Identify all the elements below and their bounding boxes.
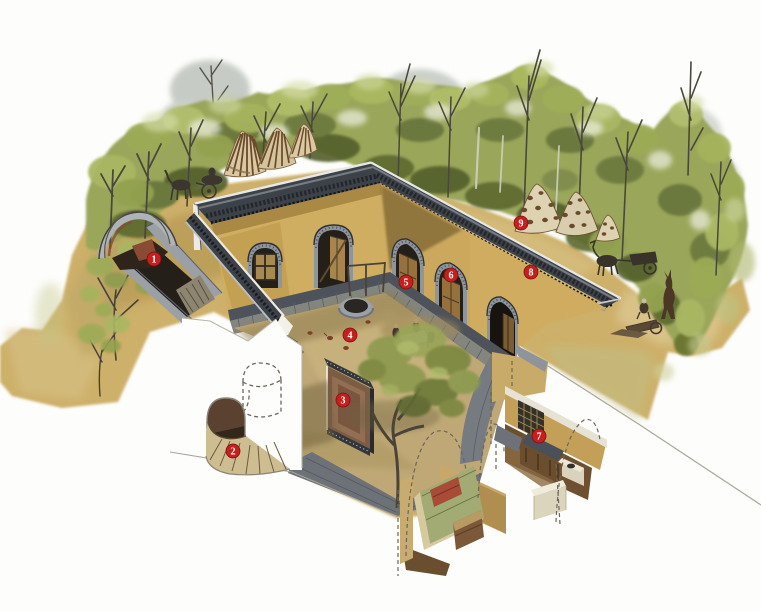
svg-text:7: 7 [537, 432, 542, 443]
svg-text:8: 8 [529, 268, 534, 279]
svg-text:5: 5 [404, 278, 409, 289]
svg-text:1: 1 [152, 255, 157, 266]
svg-text:6: 6 [449, 271, 454, 282]
svg-text:4: 4 [348, 331, 353, 342]
svg-text:3: 3 [341, 396, 346, 407]
svg-text:2: 2 [231, 447, 236, 458]
svg-text:9: 9 [519, 219, 524, 230]
